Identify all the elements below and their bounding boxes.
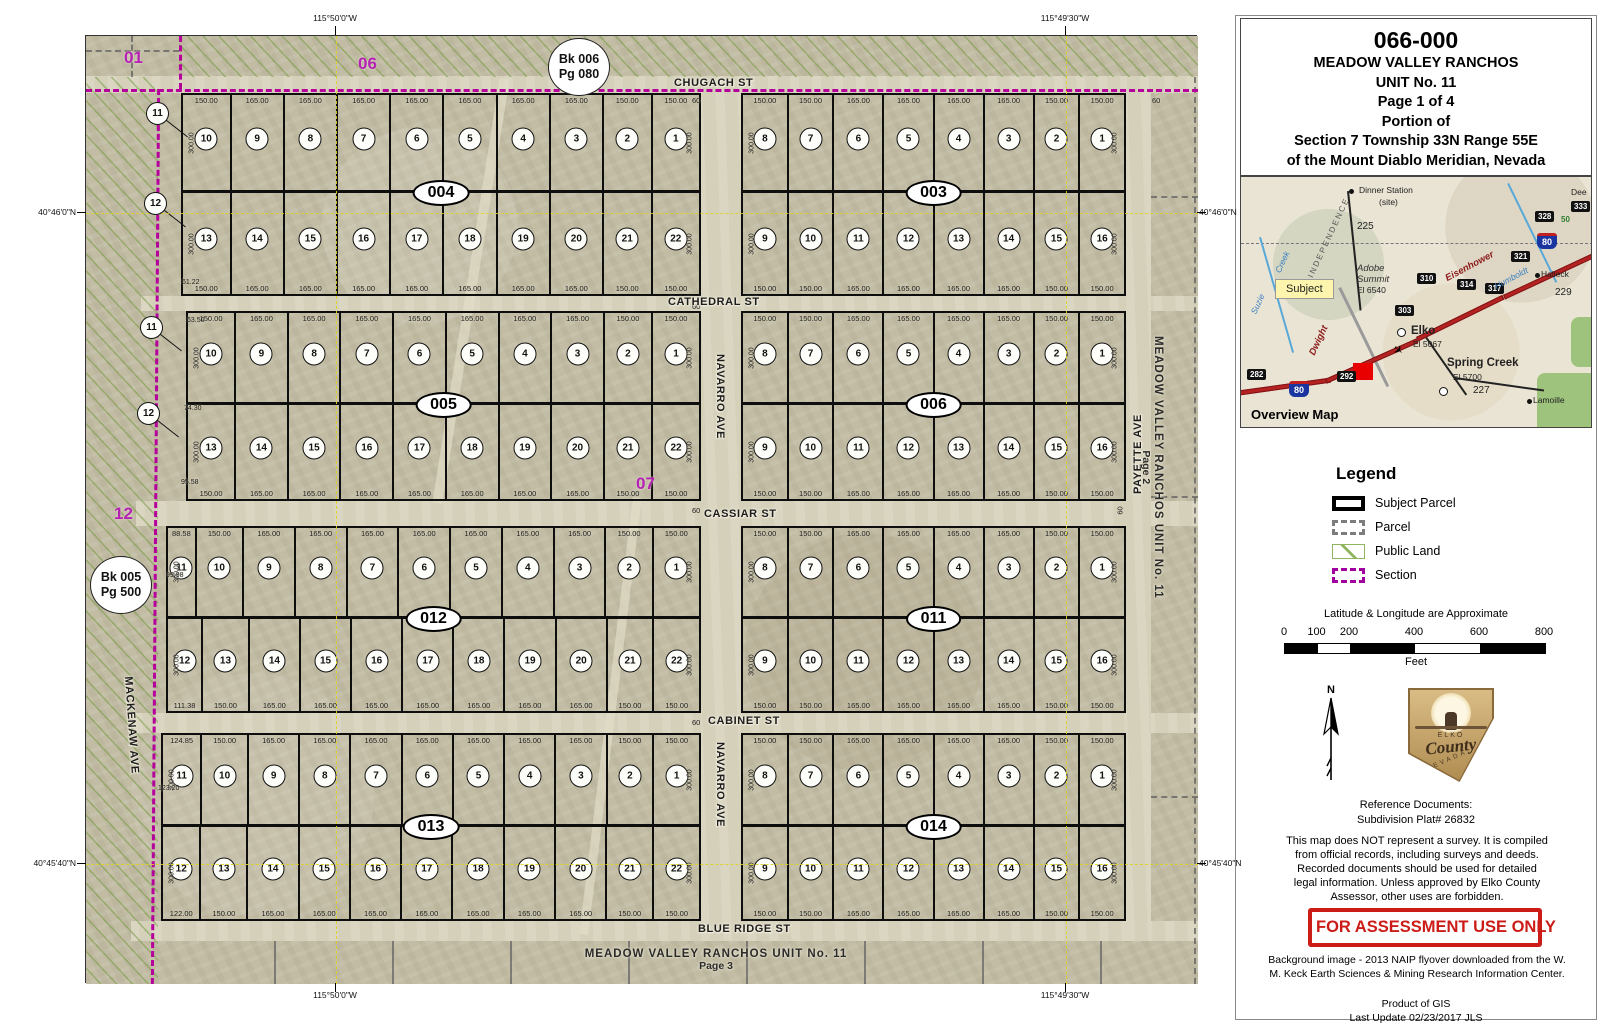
lot: 150.007 [789,95,835,190]
scale-bar-segment [1318,644,1351,653]
lot-dimension: 165.00 [557,701,606,710]
lot-dimension: 150.00 [605,314,651,323]
lot: 165.0019 [505,619,556,711]
lot-dimension: 165.00 [244,529,294,538]
book-ref-line: Pg 500 [101,585,141,600]
overview-label: (site) [1379,197,1398,207]
lot-number: 9 [753,858,776,881]
lot-depth-dimension: 300.00 [687,435,694,469]
lot-number: 1 [1091,342,1114,365]
lot-number: 1 [665,342,688,365]
legend-label: Section [1375,568,1417,582]
lot-dimension: 165.00 [296,529,346,538]
lot: 165.007 [338,95,391,190]
scale-bar-segment [1415,644,1480,653]
block-014: 150.008300.00150.007165.006165.005165.00… [741,733,1126,921]
graticule-tick [77,863,86,864]
lot-dimension: 165.00 [444,96,495,105]
lot-number: 19 [512,228,535,251]
legend-item: Section [1332,566,1456,584]
lot-dimension: 150.00 [1035,701,1079,710]
lot: 150.0015 [1035,619,1081,711]
lot-number: 2 [1045,342,1068,365]
lot-number: 9 [246,127,269,150]
lot-depth-dimension: 300.00 [749,227,756,261]
lot-dimension: 165.00 [348,529,398,538]
lot-number: 7 [799,342,822,365]
parcel-map: CHUGACH ST CATHEDRAL ST CASSIAR ST CABIN… [86,36,1198,984]
overview-label: Creek [1273,250,1292,275]
lot-dimension: 165.00 [402,909,451,918]
lot-dimension: 150.00 [1080,489,1124,498]
block-number: 013 [403,814,460,840]
lot-dimension: 165.00 [834,701,882,710]
lot: 150.0013 [203,619,250,711]
lot-dimension: 165.00 [454,701,503,710]
lot-number: 2 [1045,557,1068,580]
lot-dimension: 165.00 [500,489,551,498]
book-page-ref: Bk 005Pg 500 [90,556,152,614]
lot-dimension: 165.00 [555,529,605,538]
lot-depth-dimension: 300.00 [174,648,181,682]
lot: 165.004 [935,735,985,824]
lot-dimension: 165.00 [498,284,549,293]
lot-number: 11 [847,650,870,673]
lot: 165.006 [403,735,454,824]
lot-dimension: 150.00 [789,529,833,538]
lot: 165.004 [503,528,555,616]
lot-number: 15 [1045,858,1068,881]
graticule-tick [335,26,336,35]
lot: 165.0014 [985,405,1035,499]
map-frame: CHUGACH ST CATHEDRAL ST CASSIAR ST CABIN… [85,35,1197,983]
block-003: 150.008300.00150.007165.006165.005165.00… [741,93,1126,296]
lot-number: 13 [947,437,970,460]
street-label-cabinet: CABINET ST [708,715,780,727]
overview-label: Lamoille [1533,395,1565,405]
lot-dimension: 165.00 [289,314,340,323]
lot: 165.006 [394,313,447,402]
lot: 165.008 [300,735,351,824]
lot-number: 4 [947,557,970,580]
lot-dimension: 124.85 [163,736,200,745]
lot-number: 7 [355,342,378,365]
lot: 165.003 [985,313,1035,402]
lot-dimension: 165.00 [884,96,932,105]
lot-number: 4 [512,127,535,150]
apn-number: 066-000 [1241,27,1591,54]
lot-depth-dimension: 300.00 [189,227,196,261]
lot-dimension: 165.00 [884,736,932,745]
lot: 165.0015 [289,405,342,499]
lot-depth-dimension: 300.00 [1112,435,1119,469]
lot: 165.0011 [834,619,884,711]
scale-tick-label: 600 [1470,626,1488,638]
lot-dimension: 150.00 [789,96,833,105]
lot: 165.0014 [248,827,299,919]
lot-number: 1 [1091,764,1114,787]
coordinate-label: 115°49'30"W [1020,13,1110,23]
lot-number: 2 [616,342,639,365]
lot-depth-dimension: 300.00 [686,856,693,890]
lot-depth-dimension: 300.00 [749,763,756,797]
lot-number: 16 [1091,228,1114,251]
lot-dimension: 150.00 [1035,96,1079,105]
lot-depth-dimension: 300.00 [687,126,694,160]
lot: 150.0015 [1035,827,1081,919]
lot-dimension: 165.00 [985,701,1033,710]
lot: 165.0016 [351,827,402,919]
lot: 165.0014 [985,827,1035,919]
lot: 165.0019 [505,827,556,919]
lot: 150.009300.00 [743,193,789,294]
lot: 150.0010 [197,528,244,616]
title-line: Page 1 of 4 [1241,93,1591,113]
lot-depth-dimension: 300.00 [749,435,756,469]
lot: 165.0017 [394,405,447,499]
lot: 150.002 [1035,313,1081,402]
lot-number: 2 [616,127,639,150]
lot: 165.005 [447,313,500,402]
lot-dimension: 165.00 [391,284,442,293]
lot: 111.3812300.00 [168,619,203,711]
lot-number: 7 [799,127,822,150]
lot-dimension: 150.00 [743,909,787,918]
lot: 165.008 [285,95,338,190]
lot-dimension: 165.00 [884,701,932,710]
block-012: 88.5811300.00150.0010165.009165.008165.0… [166,526,701,713]
edge-dimension: 63.50 [187,317,205,324]
lot: 150.001300.00 [654,735,699,824]
lot-number: 6 [847,557,870,580]
lot-number: 5 [465,557,488,580]
lot-dimension: 165.00 [935,284,983,293]
lot-dimension: 150.00 [654,909,699,918]
lot-number: 19 [519,650,542,673]
lot: 165.009 [244,528,296,616]
block-004: 150.0010300.00165.009165.008165.007165.0… [181,93,701,296]
lot-dimension: 165.00 [985,284,1033,293]
lot-dimension: 150.00 [1080,529,1124,538]
lot-number: 10 [799,858,822,881]
lot-dimension: 165.00 [935,529,983,538]
lot-number: 17 [415,858,438,881]
lot: 165.0014 [985,193,1035,294]
lot-dimension: 165.00 [285,96,336,105]
lot-dimension: 150.00 [653,284,700,293]
lot: 165.0011 [834,193,884,294]
lot-number: 10 [213,764,236,787]
lot: 165.006 [399,528,451,616]
scale-tick-label: 100 [1307,626,1325,638]
lot: 165.0013 [935,827,985,919]
lot-number: 20 [565,228,588,251]
lot-number: 18 [458,228,481,251]
lot-dimension: 150.00 [743,314,787,323]
overview-label: Overview Map [1251,407,1338,422]
lot-number: 2 [618,557,641,580]
block-number: 011 [906,606,962,632]
adjacent-page-right-title: MEADOW VALLEY RANCHOS UNIT No. 11 [1152,336,1164,599]
lot-dimension: 165.00 [403,701,452,710]
street-label-cassiar: CASSIAR ST [704,508,777,520]
overview-label: El 5700 [1453,372,1482,382]
lot-number: 9 [753,437,776,460]
lot: 122.0012300.00 [163,827,201,919]
lot: 165.005 [454,735,505,824]
lot-dimension: 150.00 [1035,736,1079,745]
lot-dimension: 165.00 [834,736,882,745]
lot: 150.0016300.00 [1080,619,1124,711]
section-swatch [1332,568,1365,583]
lot-dimension: 165.00 [285,284,336,293]
lot: 165.009 [236,313,289,402]
lot: 150.001300.00 [1080,313,1124,402]
lot-dimension: 165.00 [505,701,554,710]
scale-tick-label: 800 [1535,626,1553,638]
lot-dimension: 150.00 [653,489,699,498]
lot-number: 1 [1091,127,1114,150]
lot-dimension: 165.00 [341,489,392,498]
scale-tick-label: 200 [1340,626,1358,638]
street-width-label: 60 [1152,96,1160,105]
lot-dimension: 150.00 [743,736,787,745]
lot-number: 7 [361,557,384,580]
lot: 165.007 [341,313,394,402]
lot-dimension: 165.00 [551,96,602,105]
lot: 150.0021 [607,827,654,919]
lot-number: 20 [570,650,593,673]
lot-row: 150.0013300.00165.0014165.0015165.001616… [183,193,699,294]
lot: 150.001300.00 [1080,735,1124,824]
lot: 165.0015 [285,193,338,294]
street-label-chugach: CHUGACH ST [674,77,753,89]
lot-number: 13 [212,858,235,881]
lot-dimension: 165.00 [935,489,983,498]
street-cabinet [134,713,1198,733]
lot: 150.0016300.00 [1080,405,1124,499]
overview-label: 227 [1473,385,1490,396]
lamoille-dot [1527,399,1532,404]
lot-number: 4 [947,764,970,787]
lot-dimension: 165.00 [884,909,932,918]
lot-number: 5 [467,764,490,787]
lot: 165.0019 [500,405,553,499]
lot-number: 13 [947,650,970,673]
lot-dimension: 165.00 [236,489,287,498]
lot-number: 21 [616,437,639,460]
lot-number: 10 [208,557,231,580]
lot-number: 22 [665,858,688,881]
block-number: 014 [905,814,962,840]
overview-label: El 5067 [1413,339,1442,349]
lot-number: 13 [947,228,970,251]
background-image-note: Background image - 2013 NAIP flyover dow… [1262,954,1572,981]
adjacent-page-right-page: Page 2 [1140,336,1152,599]
lot: 165.006 [834,528,884,616]
lot-number: 20 [569,858,592,881]
overview-label: 321 [1511,251,1530,262]
lot: 165.0018 [454,619,505,711]
lot-number: 15 [1045,437,1068,460]
lot: 150.002 [1035,95,1081,190]
lot-row: 111.3812300.00150.0013165.0014165.001516… [168,619,699,711]
lot-depth-dimension: 300.00 [169,856,176,890]
overview-label: Dee [1571,187,1587,197]
lot: 150.002 [605,313,653,402]
street-width-label: 60 [692,718,700,727]
lot: 165.003 [555,528,607,616]
title-line: Portion of [1241,113,1591,133]
lot: 165.007 [351,735,402,824]
lot-dimension: 165.00 [232,96,283,105]
lot: 150.002 [606,528,653,616]
lot: 165.0018 [453,827,504,919]
lot-number: 5 [897,764,920,787]
lot-number: 8 [753,557,776,580]
lot-number: 22 [664,228,687,251]
overview-label: Suzie [1249,292,1267,315]
lot-dimension: 165.00 [884,489,932,498]
lot-number: 15 [313,858,336,881]
lot-depth-dimension: 300.00 [1112,763,1119,797]
lot-dimension: 150.00 [654,529,699,538]
lot-number: 3 [569,764,592,787]
lot-depth-dimension: 300.00 [749,555,756,589]
section-line [179,36,182,89]
lot: 150.0010 [789,193,835,294]
adjacent-page-right: MEADOW VALLEY RANCHOS UNIT No. 11 Page 2 [1140,336,1164,599]
lot-dimension: 150.00 [1080,701,1124,710]
spring-creek-symbol [1439,387,1448,396]
sliver-lot-number: 12 [137,402,160,425]
overview-label: Subject [1275,279,1334,299]
overview-label: 328 [1535,211,1554,222]
lot: 150.009300.00 [743,827,789,919]
lot: 165.008 [296,528,348,616]
lot-dimension: 111.38 [168,701,201,710]
lot-dimension: 165.00 [351,736,400,745]
lot-number: 18 [461,437,484,460]
parcel-line [1151,796,1198,798]
legend-item: Public Land [1332,542,1456,560]
lot: 150.007 [789,313,835,402]
lot-number: 3 [997,557,1020,580]
lot-number: 4 [518,764,541,787]
parcel-line [1151,196,1198,198]
lot-dimension: 150.00 [183,96,230,105]
lot-number: 9 [753,228,776,251]
overview-label: 80 [1537,233,1557,249]
edge-dimension: 61.22 [182,279,200,286]
lot-dimension: 150.00 [789,909,833,918]
overview-label: 50 [1561,215,1570,224]
edge-dimension: 74.30 [184,405,202,412]
lot-number: 17 [405,228,428,251]
lot-dimension: 150.00 [789,701,833,710]
lot-number: 19 [513,437,536,460]
street-width-label: 60 [692,506,700,515]
lot: 165.0018 [444,193,497,294]
lot-dimension: 165.00 [834,284,882,293]
lot-number: 6 [416,764,439,787]
lot-dimension: 150.00 [202,736,247,745]
lot-number: 4 [947,127,970,150]
scale-bar-segment [1285,644,1318,653]
lot-dimension: 165.00 [498,96,549,105]
lot: 165.0012 [884,405,934,499]
street-label-cathedral: CATHEDRAL ST [668,296,760,308]
lot-number: 10 [799,228,822,251]
overview-label: Dwight [1307,324,1330,357]
lot-number: 12 [897,650,920,673]
lot: 150.0015 [1035,405,1081,499]
lot-number: 3 [997,764,1020,787]
lot-depth-dimension: 300.00 [1112,555,1119,589]
lot-number: 1 [1091,557,1114,580]
lot-number: 3 [565,127,588,150]
lot-dimension: 150.00 [604,96,651,105]
lot-number: 8 [309,557,332,580]
graticule-tick [1065,983,1066,992]
lot: 165.0017 [403,619,454,711]
lot: 150.0015 [1035,193,1081,294]
lot-dimension: 150.00 [789,284,833,293]
lot: 165.0020 [557,619,608,711]
lot-number: 5 [897,557,920,580]
lot: 150.0016300.00 [1080,193,1124,294]
lot: 165.004 [935,313,985,402]
lot: 165.003 [985,95,1035,190]
lot-dimension: 165.00 [985,314,1033,323]
lot-number: 20 [566,437,589,460]
lot-dimension: 165.00 [834,96,882,105]
lot-dimension: 165.00 [300,909,349,918]
lot: 165.0016 [341,405,394,499]
title-line: UNIT No. 11 [1241,74,1591,94]
lot: 165.009 [232,95,285,190]
lot: 150.008300.00 [743,95,789,190]
disclaimer-text: This map does NOT represent a survey. It… [1286,834,1548,904]
book-ref-line: Bk 005 [101,570,141,585]
lot-number: 2 [618,764,641,787]
lot-number: 13 [947,858,970,881]
street-blue-ridge [131,921,1198,941]
lot: 165.0016 [352,619,403,711]
lot-dimension: 165.00 [985,736,1033,745]
street-label-navarro-upper: NAVARRO AVE [714,354,726,439]
lot-dimension: 150.00 [188,489,234,498]
lot-dimension: 150.00 [1035,314,1079,323]
lot-depth-dimension: 300.00 [194,341,201,375]
lot-dimension: 150.00 [743,701,787,710]
graticule-tick [335,983,336,992]
lot-number: 2 [1045,127,1068,150]
lot-dimension: 165.00 [403,736,452,745]
lot-number: 15 [303,437,326,460]
lot-dimension: 165.00 [248,909,297,918]
lot-dimension: 165.00 [985,529,1033,538]
legend-label: Subject Parcel [1375,496,1456,510]
coordinate-label: 115°50'0"W [290,13,380,23]
lot-number: 14 [997,437,1020,460]
overview-map: ✈ Dinner Station(site)225Dee333328508032… [1240,176,1592,428]
lot: 150.0010 [789,827,835,919]
lot-dimension: 165.00 [351,909,400,918]
lot-dimension: 165.00 [236,314,287,323]
lot-number: 14 [261,858,284,881]
lot: 165.0018 [447,405,500,499]
